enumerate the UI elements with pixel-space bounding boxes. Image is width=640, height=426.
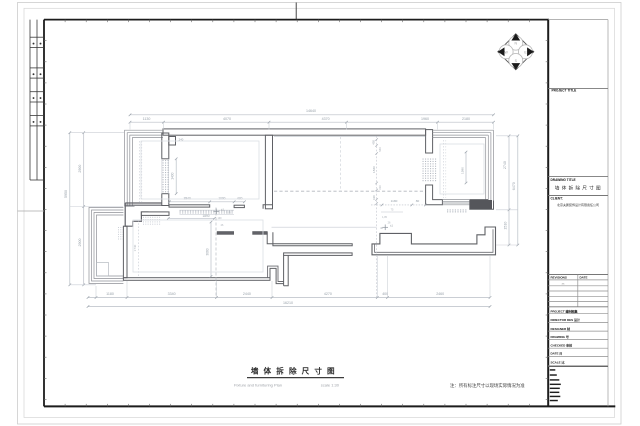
svg-text:1180: 1180 [391,199,398,203]
svg-text:DRAWING 号: DRAWING 号 [551,334,569,339]
svg-text:CLIENT:: CLIENT: [551,197,563,201]
svg-text:1000: 1000 [218,196,225,200]
svg-text:80: 80 [416,199,420,203]
svg-text:430: 430 [371,140,375,145]
svg-text:100: 100 [218,217,223,220]
svg-text:1840: 1840 [372,166,376,173]
svg-text:540: 540 [378,147,382,152]
svg-text:1740: 1740 [133,244,137,251]
svg-text:6470: 6470 [512,182,516,190]
svg-text:1510: 1510 [504,222,508,230]
svg-text:2900: 2900 [78,239,82,247]
svg-text:430: 430 [237,196,243,200]
svg-text:北京夫鹏装饰设计有限责任公司: 北京夫鹏装饰设计有限责任公司 [557,202,599,207]
svg-text:DRAWING TITLE: DRAWING TITLE [551,178,576,182]
svg-text:1890: 1890 [202,214,209,218]
svg-text:PROJECT TITLE: PROJECT TITLE [552,88,577,92]
svg-text:CHECKED 审核: CHECKED 审核 [551,343,573,348]
svg-text:310: 310 [378,185,382,190]
svg-text:2440: 2440 [243,292,251,296]
svg-text:PROJECT 编制图集: PROJECT 编制图集 [551,308,579,313]
svg-text:1400: 1400 [171,172,175,179]
svg-text:2740: 2740 [503,161,507,169]
svg-text:5950: 5950 [64,190,68,198]
svg-text:0.05: 0.05 [226,212,231,215]
svg-text:2460: 2460 [436,292,444,296]
svg-text:scale 1:30: scale 1:30 [321,382,340,387]
svg-text:4370: 4370 [322,117,330,121]
svg-text:注：所有标注尺寸以现场实际情况为准: 注：所有标注尺寸以现场实际情况为准 [450,382,525,389]
svg-text:3340: 3340 [168,292,176,296]
svg-text:DATE 日: DATE 日 [551,351,563,356]
svg-text:620: 620 [372,195,376,200]
svg-text:DATE: DATE [580,276,588,280]
svg-text:1580: 1580 [460,167,464,174]
svg-text:1130: 1130 [143,117,151,121]
svg-text:Fixture and furnituring Plan: Fixture and furnituring Plan [234,382,282,387]
svg-text:墙 体 拆 除 尺 寸 图: 墙 体 拆 除 尺 寸 图 [251,366,336,376]
svg-text:2900: 2900 [78,165,82,173]
svg-text:REVISIONS: REVISIONS [551,276,567,280]
svg-text:1,05: 1,05 [382,216,387,219]
svg-text:SCALE 比: SCALE 比 [551,359,565,364]
svg-text:DIRECTOR DES 设计: DIRECTOR DES 设计 [551,317,580,322]
svg-text:16210: 16210 [283,301,293,305]
svg-text:4270: 4270 [324,292,332,296]
svg-text:DESIGNER 制: DESIGNER 制 [551,326,571,331]
svg-text:2180: 2180 [462,117,470,121]
svg-text:1960: 1960 [421,117,429,121]
svg-text:3060: 3060 [205,248,209,255]
svg-text:墙 体 拆 除 尺 寸 图: 墙 体 拆 除 尺 寸 图 [555,184,601,191]
svg-text:14640: 14640 [306,109,316,113]
svg-text:4070: 4070 [223,117,231,121]
svg-text:1180: 1180 [106,292,114,296]
svg-text:3840: 3840 [184,196,191,200]
